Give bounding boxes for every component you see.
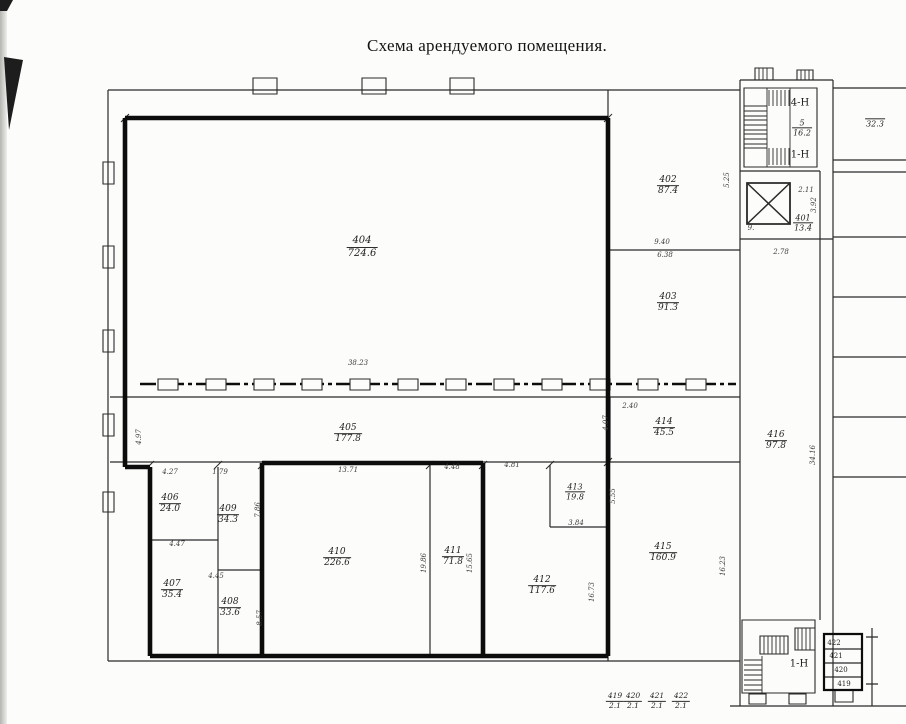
dimension-label: 9. — [748, 224, 755, 232]
room-number — [865, 109, 885, 119]
dimension-label: 4.48 — [444, 463, 460, 471]
room-label-401: 40113.4 — [793, 213, 813, 232]
dimension-label: 5.25 — [723, 172, 731, 188]
room-number: 413 — [565, 482, 585, 492]
room-label-413: 41319.8 — [565, 482, 585, 501]
room-label-407: 40735.4 — [161, 579, 183, 601]
annotation-label-419: 419 — [837, 680, 850, 688]
annotation-label-1-н: 1-Н — [790, 659, 808, 670]
room-label-402: 40287.4 — [657, 175, 679, 197]
dimension-label: 34.16 — [809, 445, 817, 465]
room-number: 401 — [793, 213, 813, 223]
room-area: 35.4 — [161, 591, 183, 601]
dimension-label: 4.81 — [504, 461, 520, 469]
dimension-label: 15.65 — [466, 553, 474, 573]
room-number: 408 — [219, 597, 241, 608]
label-layer: 404724.640287.440391.3405177.841445.5406… — [0, 0, 906, 724]
dimension-label: 16.73 — [588, 582, 596, 602]
room-number: 410 — [323, 547, 351, 558]
room-area: 34.3 — [217, 516, 239, 526]
room-area: 16.2 — [792, 129, 812, 138]
room-area: 2.1 — [624, 702, 642, 711]
room-number: 405 — [334, 423, 362, 434]
room-area: 33.6 — [219, 609, 241, 619]
room-number: 5 — [792, 118, 812, 128]
dimension-label: 2.78 — [773, 248, 789, 256]
room-area: 19.8 — [565, 493, 585, 502]
shaft-label-421: 4212.1 — [648, 692, 666, 710]
room-number: 406 — [159, 493, 181, 504]
room-number: 403 — [657, 292, 679, 303]
dimension-label: 3.84 — [568, 519, 584, 527]
room-label-415: 415160.9 — [649, 542, 677, 564]
room-label-32.3: 32.3 — [865, 109, 885, 128]
room-area: 177.8 — [334, 435, 362, 445]
dimension-label: 4.97 — [135, 429, 143, 445]
dimension-label: 5.55 — [609, 488, 617, 504]
room-label-408: 40833.6 — [219, 597, 241, 619]
room-area: 2.1 — [672, 702, 690, 711]
dimension-label: 2.40 — [622, 402, 638, 410]
dimension-label: 9.40 — [654, 238, 670, 246]
annotation-label-420: 420 — [834, 666, 847, 674]
room-number: 407 — [161, 579, 183, 590]
room-label-416: 41697.8 — [765, 430, 787, 452]
dimension-label: 19.86 — [420, 553, 428, 573]
dimension-label: 3.92 — [810, 197, 818, 213]
dimension-label: 4.27 — [162, 468, 178, 476]
room-number: 412 — [528, 575, 556, 586]
annotation-label-421: 421 — [829, 652, 842, 660]
dimension-label: 13.71 — [338, 466, 358, 474]
room-area: 2.1 — [648, 702, 666, 711]
room-number: 402 — [657, 175, 679, 186]
room-number: 414 — [653, 417, 675, 428]
room-number: 404 — [347, 235, 378, 248]
dimension-label: 7.86 — [254, 502, 262, 518]
dimension-label: 38.23 — [348, 359, 368, 367]
room-area: 160.9 — [649, 554, 677, 564]
room-label-404: 404724.6 — [347, 235, 378, 259]
room-label-411: 41171.8 — [442, 546, 464, 568]
room-area: 117.6 — [528, 587, 556, 597]
room-area: 71.8 — [442, 558, 464, 568]
room-area: 724.6 — [347, 248, 378, 260]
room-label-414: 41445.5 — [653, 417, 675, 439]
dimension-label: 16.23 — [719, 556, 727, 576]
shaft-label-422: 4222.1 — [672, 692, 690, 710]
room-label-405: 405177.8 — [334, 423, 362, 445]
dimension-label: 4.47 — [169, 540, 185, 548]
room-area: 13.4 — [793, 224, 813, 233]
dimension-label: 1.79 — [212, 468, 228, 476]
dimension-label: 4.07 — [602, 415, 610, 431]
room-label-409: 40934.3 — [217, 504, 239, 526]
dimension-label: 8.57 — [256, 610, 264, 626]
annotation-label-422: 422 — [827, 639, 840, 647]
annotation-label-1-н: 1-Н — [791, 150, 809, 161]
dimension-label: 4.45 — [208, 572, 224, 580]
room-area: 87.4 — [657, 187, 679, 197]
room-number: 409 — [217, 504, 239, 515]
annotation-label-4-н: 4-Н — [791, 98, 809, 109]
dimension-label: 2.11 — [798, 186, 814, 194]
room-area: 2.1 — [606, 702, 624, 711]
room-number: 415 — [649, 542, 677, 553]
shaft-label-419: 4192.1 — [606, 692, 624, 710]
room-area: 24.0 — [159, 505, 181, 515]
room-label-5: 516.2 — [792, 118, 812, 137]
dimension-label: 6.38 — [657, 251, 673, 259]
room-area: 32.3 — [865, 120, 885, 129]
room-area: 45.5 — [653, 429, 675, 439]
room-label-410: 410226.6 — [323, 547, 351, 569]
room-area: 91.3 — [657, 304, 679, 314]
room-number: 416 — [765, 430, 787, 441]
scanned-floor-plan-page: Схема арендуемого помещения. 404724.6402… — [0, 0, 906, 724]
room-label-403: 40391.3 — [657, 292, 679, 314]
room-area: 97.8 — [765, 442, 787, 452]
room-number: 411 — [442, 546, 464, 557]
room-label-412: 412117.6 — [528, 575, 556, 597]
room-label-406: 40624.0 — [159, 493, 181, 515]
room-area: 226.6 — [323, 559, 351, 569]
shaft-label-420: 4202.1 — [624, 692, 642, 710]
